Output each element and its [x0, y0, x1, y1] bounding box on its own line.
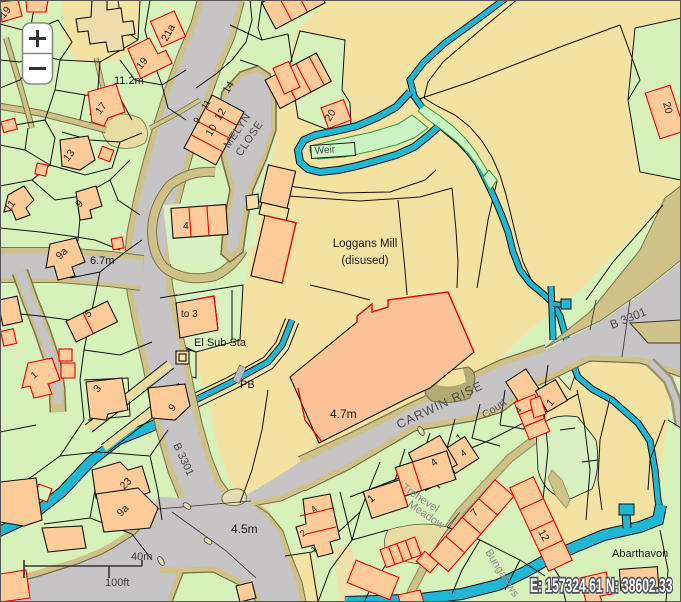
svg-text:100ft: 100ft — [105, 577, 129, 589]
svg-text:Weir: Weir — [314, 144, 336, 157]
svg-text:to 3: to 3 — [181, 309, 198, 320]
svg-text:6.7m: 6.7m — [90, 255, 114, 267]
svg-text:4.5m: 4.5m — [231, 522, 258, 536]
svg-text:El Sub Sta: El Sub Sta — [194, 337, 247, 349]
svg-text:PB: PB — [240, 379, 255, 391]
svg-text:40m: 40m — [131, 551, 152, 563]
svg-text:4: 4 — [183, 220, 189, 232]
svg-text:(disused): (disused) — [341, 255, 388, 267]
svg-text:4.7m: 4.7m — [330, 407, 357, 421]
svg-text:11.2m: 11.2m — [114, 75, 144, 87]
svg-text:Loggans Mill: Loggans Mill — [333, 238, 398, 250]
svg-text:Abarthavon: Abarthavon — [612, 548, 668, 560]
svg-text:E: 157324.61 N: 38602.33: E: 157324.61 N: 38602.33 — [530, 576, 673, 596]
